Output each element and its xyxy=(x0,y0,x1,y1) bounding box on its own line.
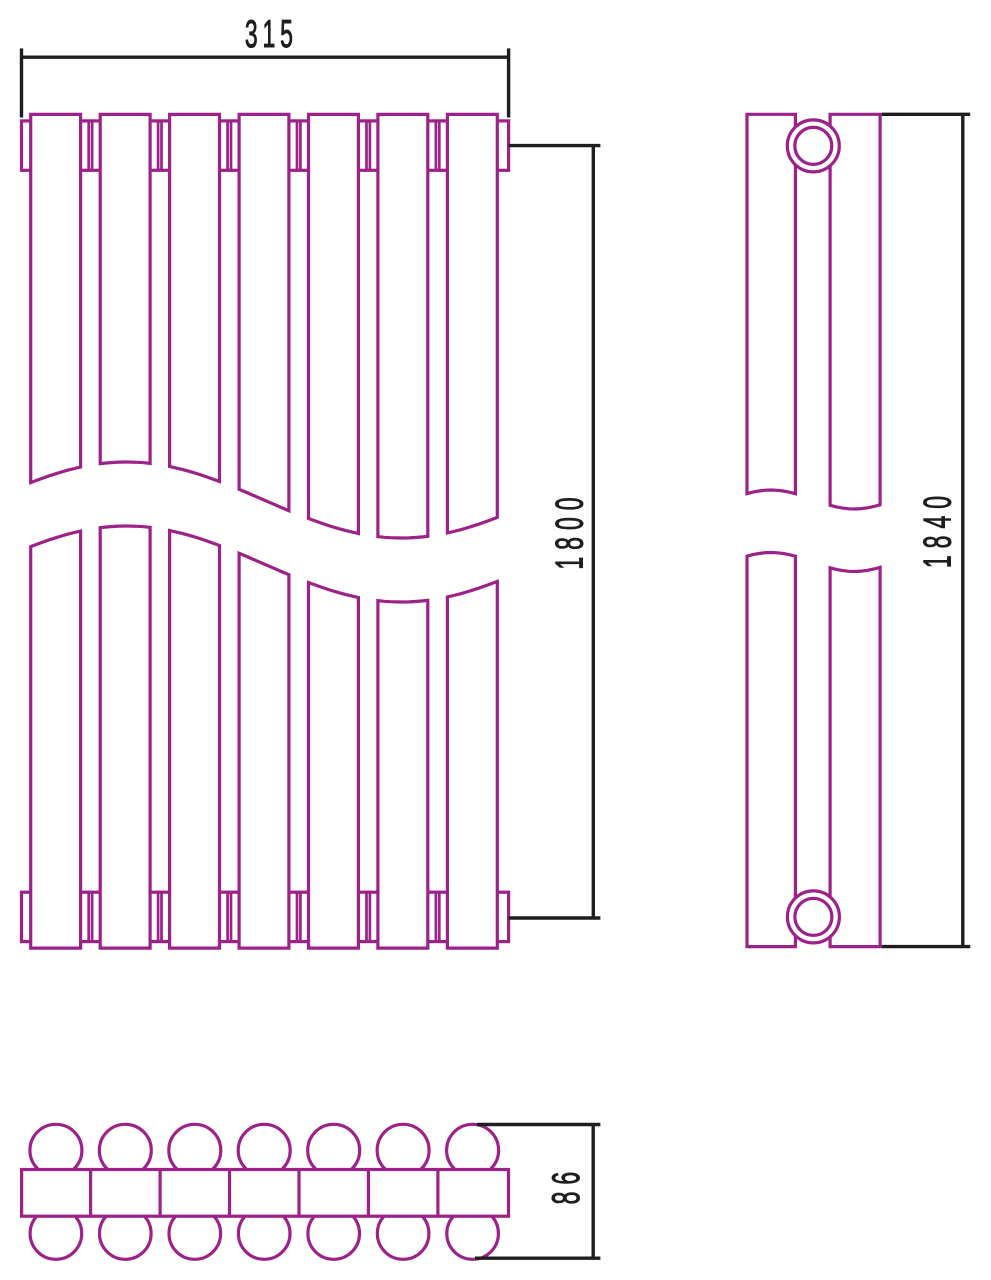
svg-text:315: 315 xyxy=(245,12,298,56)
svg-text:86: 86 xyxy=(544,1165,588,1205)
svg-text:1800: 1800 xyxy=(547,490,591,569)
svg-text:1840: 1840 xyxy=(915,489,959,568)
